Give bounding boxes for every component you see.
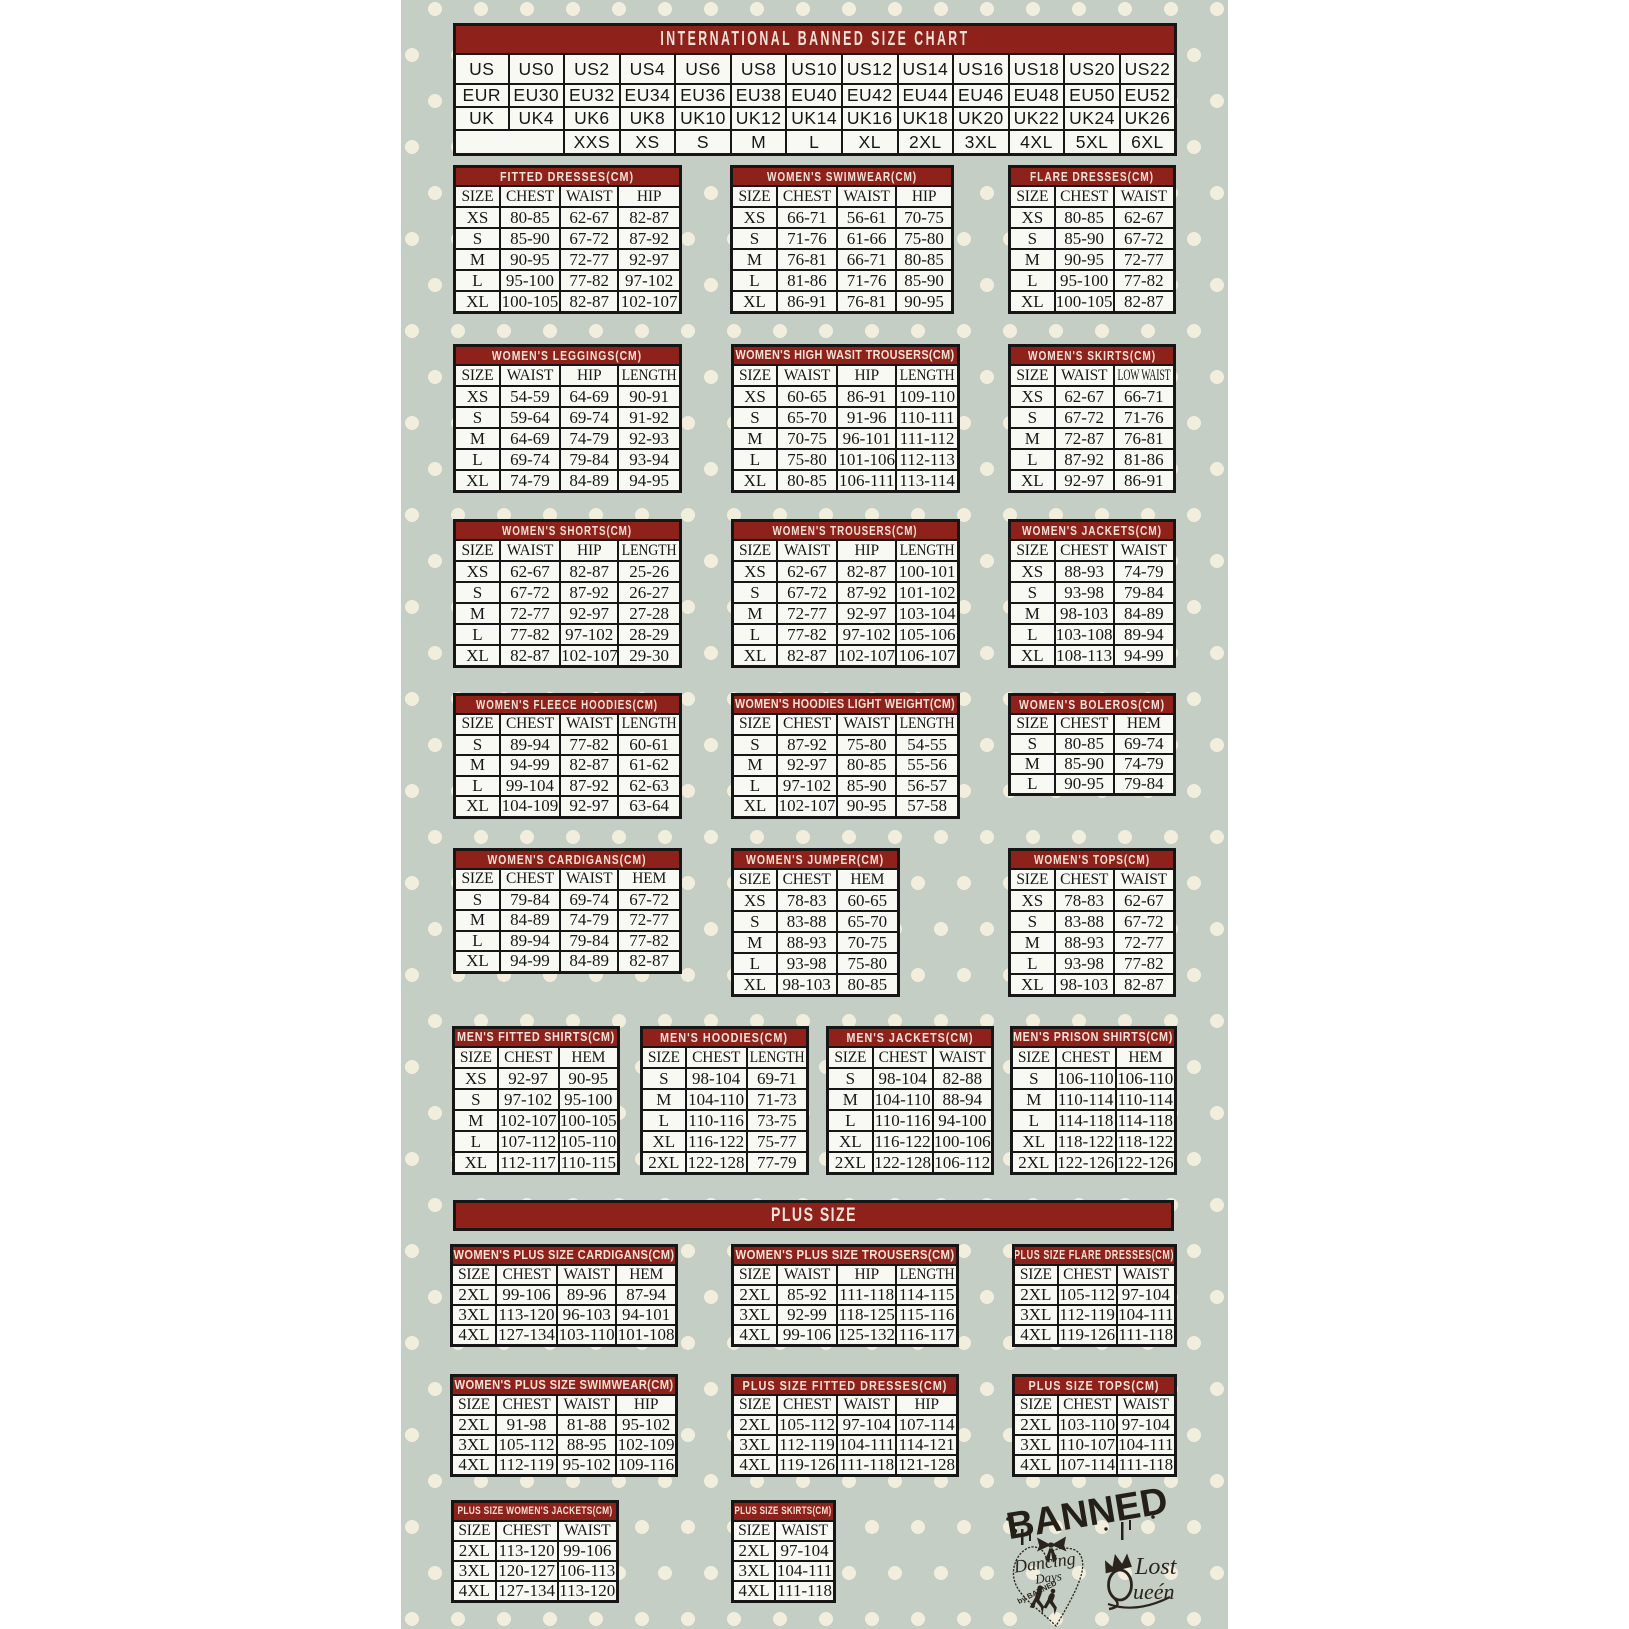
svg-text:ueén: ueén (1133, 1579, 1175, 1604)
svg-text:Lost: Lost (1134, 1554, 1178, 1580)
